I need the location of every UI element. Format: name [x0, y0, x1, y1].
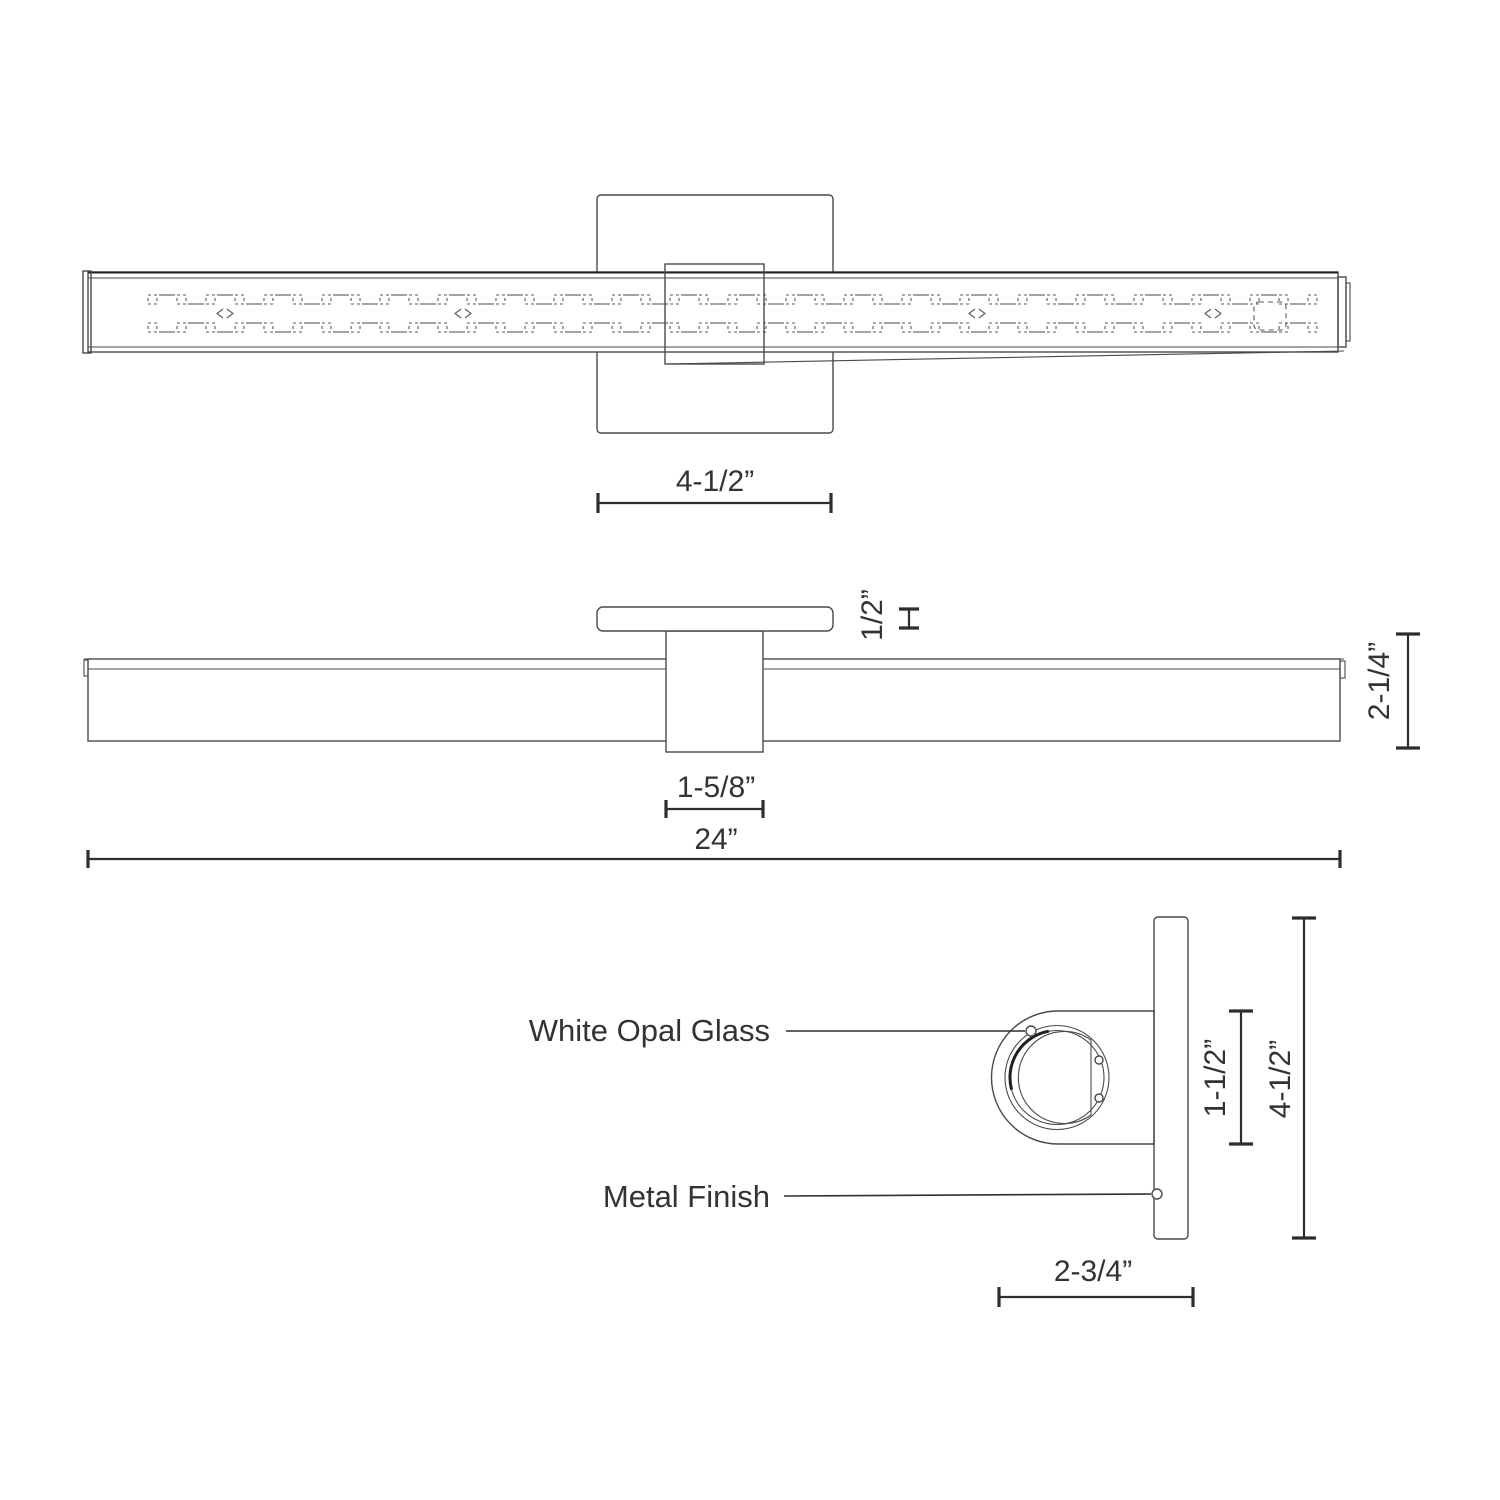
dim-arm-width-label: 1-5/8”: [677, 771, 755, 804]
dim-fixture-height-label: 2-1/4”: [1363, 642, 1396, 720]
dim-overall-width-label: 24”: [694, 823, 737, 856]
screw-glass: [1026, 1026, 1036, 1036]
dim-housing-diameter-label: 1-1/2”: [1199, 1039, 1232, 1117]
finish-label: Metal Finish: [603, 1179, 770, 1214]
glass-label: White Opal Glass: [529, 1013, 770, 1048]
dim-plate-thickness-label: 1/2”: [856, 589, 889, 641]
fixture-spec-diagram: 4-1/2” 1/2” 2-1/4”: [0, 0, 1500, 1500]
dim-depth-label: 2-3/4”: [1054, 1255, 1132, 1288]
screw-bracket-bottom: [1095, 1094, 1103, 1102]
screw-backplate: [1152, 1189, 1162, 1199]
screw-bracket-top: [1095, 1056, 1103, 1064]
dim-backplate-height-label: 4-1/2”: [1264, 1040, 1297, 1118]
technical-drawing-page: 4-1/2” 1/2” 2-1/4”: [0, 0, 1500, 1500]
front-view-backplate: [597, 607, 833, 631]
front-view-arm: [666, 631, 763, 752]
dim-canopy-width-label: 4-1/2”: [676, 465, 754, 498]
top-view-light-bar: [88, 272, 1338, 352]
